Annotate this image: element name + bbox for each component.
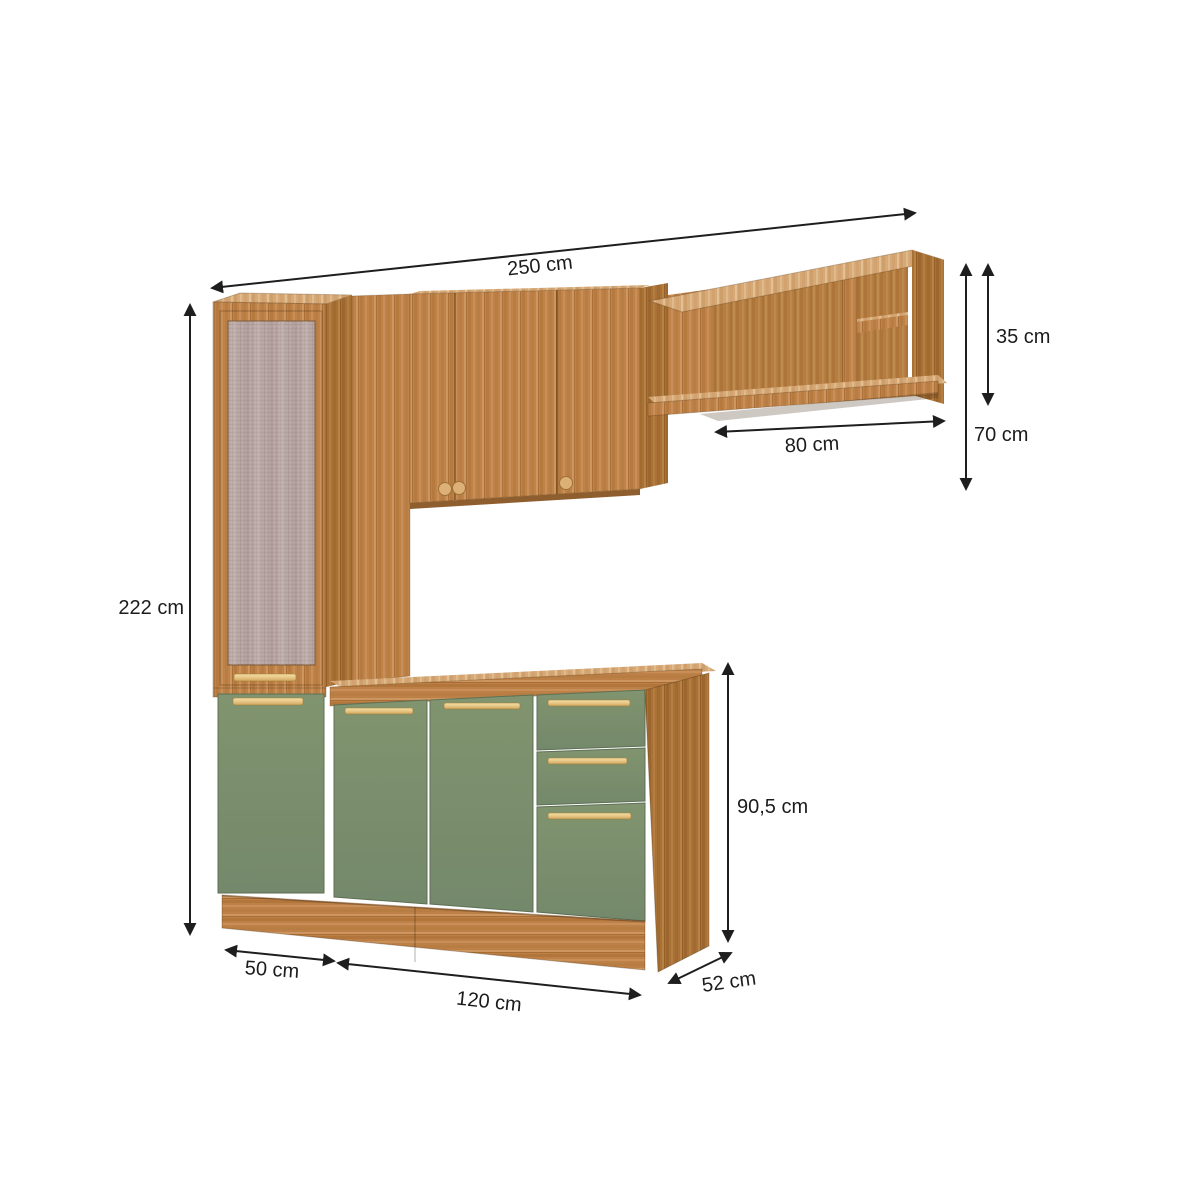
dim-tall-width-label: 50 cm bbox=[244, 957, 300, 983]
tall-cabinet-lower-door bbox=[218, 694, 324, 893]
dim-tall-cabinet-width: 50 cm bbox=[226, 950, 334, 983]
hutch-side-panel bbox=[352, 294, 410, 683]
shelf-unit-divider bbox=[843, 269, 857, 401]
mesh-panel-weave-overlay bbox=[228, 321, 315, 665]
base-door-1 bbox=[334, 700, 427, 904]
wall-door-knob-2 bbox=[453, 482, 466, 495]
dim-wall-shelf-label: 80 cm bbox=[784, 433, 840, 458]
dim-total-height-label: 222 cm bbox=[118, 597, 184, 619]
dim-base-width: 120 cm bbox=[338, 963, 640, 1016]
dim-total-height: 222 cm bbox=[118, 305, 190, 934]
dim-upper-compartment-height: 35 cm bbox=[988, 265, 1050, 404]
drawer-1-handle bbox=[548, 700, 630, 706]
wall-door-knob-1 bbox=[439, 483, 452, 496]
wall-cabinet bbox=[410, 283, 668, 509]
base-cabinet-right-side bbox=[645, 673, 709, 972]
dim-upper-compartment-label: 35 cm bbox=[996, 326, 1050, 348]
product-dimension-diagram: 250 cm 222 cm 35 cm 70 cm 80 cm 90,5 cm … bbox=[0, 0, 1200, 1200]
drawer-3-handle bbox=[548, 813, 631, 819]
open-shelf-unit bbox=[648, 250, 947, 421]
tall-lower-door-handle bbox=[233, 698, 303, 705]
dim-upper-unit-height: 70 cm bbox=[966, 265, 1028, 489]
base-door-2 bbox=[430, 695, 533, 912]
dim-wall-shelf-width: 80 cm bbox=[716, 421, 944, 457]
wall-door-knob-3 bbox=[560, 477, 573, 490]
glass-door-handle bbox=[234, 674, 296, 681]
dim-wall-shelf-arrow bbox=[716, 421, 944, 432]
base-door-1-handle bbox=[345, 708, 413, 714]
drawer-stack bbox=[537, 690, 645, 921]
drawer-1 bbox=[537, 690, 645, 750]
dim-depth-label: 52 cm bbox=[700, 968, 757, 997]
dim-upper-unit-label: 70 cm bbox=[974, 424, 1028, 446]
dim-base-height-label: 90,5 cm bbox=[737, 796, 808, 818]
drawer-2 bbox=[537, 748, 645, 805]
wall-cabinet-front bbox=[410, 288, 640, 503]
dim-base-height: 90,5 cm bbox=[728, 664, 808, 941]
wall-cabinet-side bbox=[640, 283, 668, 489]
tall-cabinet bbox=[213, 293, 352, 893]
cabinet-diagram-canvas: 250 cm 222 cm 35 cm 70 cm 80 cm 90,5 cm … bbox=[0, 0, 1200, 1200]
dim-base-width-label: 120 cm bbox=[455, 988, 523, 1017]
tall-cabinet-side bbox=[326, 295, 352, 687]
base-door-2-handle bbox=[444, 703, 520, 709]
drawer-2-handle bbox=[548, 758, 627, 764]
drawer-3 bbox=[537, 803, 645, 921]
